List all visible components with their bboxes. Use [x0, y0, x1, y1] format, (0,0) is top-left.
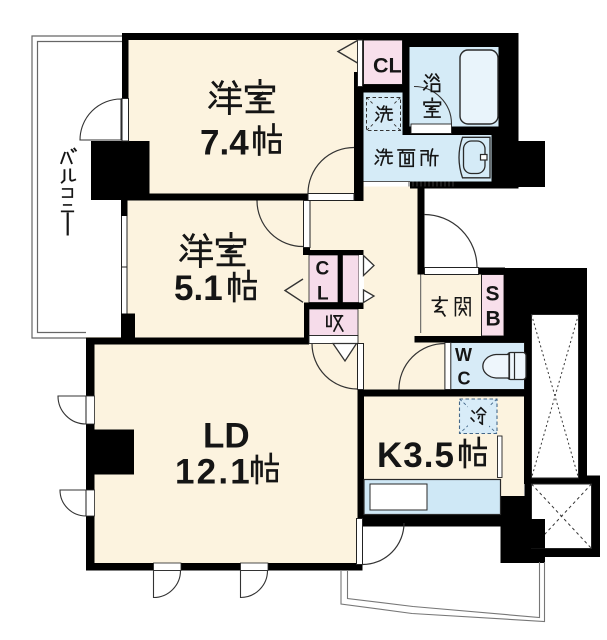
svg-text:B: B: [486, 308, 501, 331]
svg-text:W: W: [455, 345, 472, 365]
svg-text:CL: CL: [373, 54, 402, 78]
svg-text:S: S: [486, 283, 500, 306]
svg-text:12.1: 12.1: [175, 453, 252, 492]
svg-text:LD: LD: [203, 417, 250, 456]
svg-text:C: C: [316, 259, 330, 280]
svg-text:C: C: [458, 369, 471, 389]
svg-text:5.1: 5.1: [174, 269, 223, 308]
svg-text:K3.5: K3.5: [377, 436, 455, 475]
svg-text:7.4: 7.4: [200, 124, 249, 163]
svg-text:L: L: [317, 284, 329, 305]
